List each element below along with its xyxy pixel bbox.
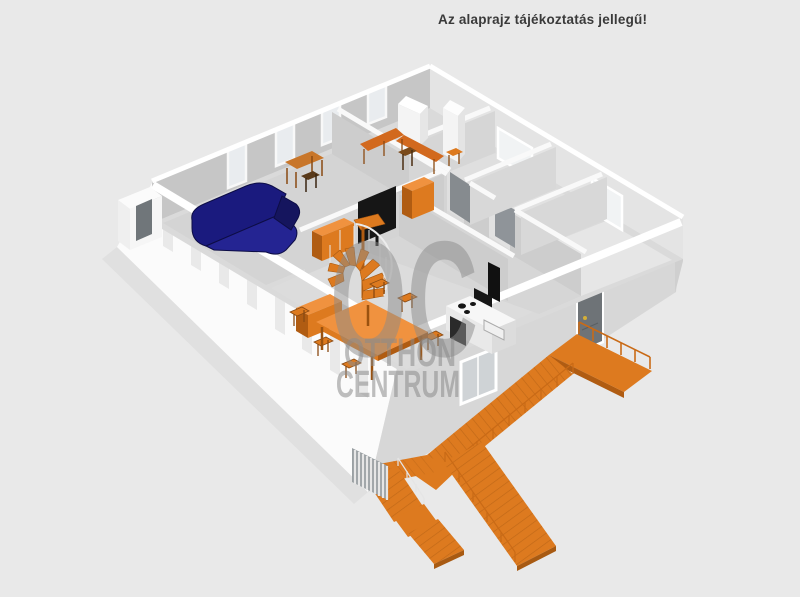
floorplan-3d-view: Az alaprajz tájékoztatás jellegű! [0, 0, 800, 597]
watermark-line2: CENTRUM [336, 364, 460, 406]
floorplan-render-page: Az alaprajz tájékoztatás jellegű! [0, 0, 800, 597]
porch-door [136, 199, 152, 241]
disclaimer-text: Az alaprajz tájékoztatás jellegű! [438, 12, 647, 27]
watermark: OC OTTHON CENTRUM [330, 207, 478, 406]
door-handle [583, 316, 587, 320]
